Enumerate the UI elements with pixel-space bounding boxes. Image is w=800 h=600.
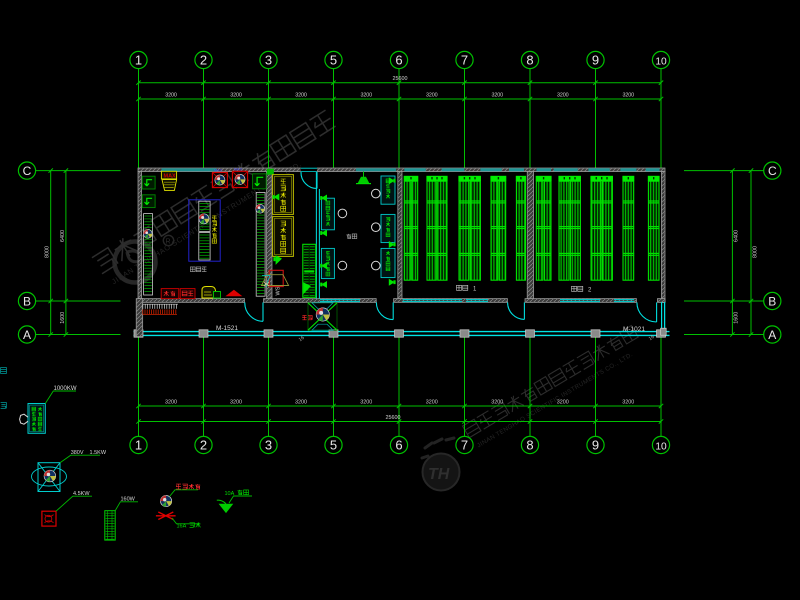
svg-text:3200: 3200 — [230, 93, 242, 99]
svg-text:MAX: MAX — [164, 173, 177, 179]
svg-text:3200: 3200 — [491, 399, 503, 405]
svg-text:2: 2 — [200, 53, 207, 68]
svg-text:5: 5 — [330, 53, 337, 68]
svg-text:3200: 3200 — [360, 399, 372, 405]
svg-text:3200: 3200 — [295, 93, 307, 99]
svg-text:6: 6 — [395, 53, 402, 68]
svg-text:25600: 25600 — [393, 76, 408, 82]
svg-text:5: 5 — [330, 438, 337, 453]
svg-text:16A: 16A — [177, 524, 187, 530]
svg-text:3200: 3200 — [360, 93, 372, 99]
svg-text:8000: 8000 — [45, 246, 51, 258]
svg-text:7: 7 — [461, 438, 468, 453]
svg-text:9: 9 — [592, 53, 599, 68]
svg-text:6400: 6400 — [60, 230, 66, 242]
svg-text:3200: 3200 — [491, 93, 503, 99]
svg-text:1: 1 — [135, 438, 142, 453]
svg-text:C: C — [23, 164, 32, 178]
svg-text:1600: 1600 — [60, 312, 66, 324]
svg-text:8: 8 — [526, 438, 533, 453]
svg-text:2: 2 — [200, 438, 207, 453]
svg-text:1600: 1600 — [734, 312, 740, 324]
svg-text:3200: 3200 — [426, 93, 438, 99]
svg-text:3200: 3200 — [295, 399, 307, 405]
svg-text:380V: 380V — [71, 450, 84, 456]
svg-text:3200: 3200 — [230, 399, 242, 405]
svg-text:6: 6 — [395, 438, 402, 453]
svg-text:3200: 3200 — [622, 399, 634, 405]
svg-text:6400: 6400 — [734, 230, 740, 242]
svg-text:8000: 8000 — [753, 246, 759, 258]
svg-text:3200: 3200 — [622, 93, 634, 99]
svg-text:25600: 25600 — [386, 415, 401, 421]
svg-text:3: 3 — [265, 438, 272, 453]
svg-text:B: B — [23, 294, 31, 308]
svg-text:3200: 3200 — [165, 93, 177, 99]
svg-text:10A: 10A — [225, 491, 235, 497]
svg-text:9: 9 — [592, 438, 599, 453]
svg-text:3200: 3200 — [165, 399, 177, 405]
svg-text:4.5KW: 4.5KW — [73, 491, 90, 497]
svg-text:M-1021: M-1021 — [623, 326, 645, 333]
svg-text:1: 1 — [135, 53, 142, 68]
svg-text:B: B — [768, 294, 776, 308]
svg-text:160W: 160W — [121, 497, 136, 503]
svg-text:10: 10 — [655, 442, 667, 453]
svg-text:3200: 3200 — [426, 399, 438, 405]
svg-text:8: 8 — [526, 53, 533, 68]
svg-text:MAX: MAX — [214, 169, 223, 173]
svg-text:MAX: MAX — [234, 168, 243, 172]
svg-text:7: 7 — [461, 53, 468, 68]
svg-text:M-1521: M-1521 — [216, 325, 238, 332]
svg-text:10: 10 — [655, 57, 667, 68]
svg-text:A: A — [768, 328, 776, 342]
svg-text:C: C — [768, 164, 777, 178]
svg-text:1.5KW: 1.5KW — [90, 450, 107, 456]
svg-text:3: 3 — [265, 53, 272, 68]
svg-text:1000KW: 1000KW — [54, 386, 77, 392]
svg-text:TH: TH — [428, 466, 450, 483]
svg-text:3200: 3200 — [557, 399, 569, 405]
svg-text:A: A — [23, 328, 31, 342]
svg-text:3200: 3200 — [557, 93, 569, 99]
svg-text:WS: WS — [276, 286, 282, 295]
